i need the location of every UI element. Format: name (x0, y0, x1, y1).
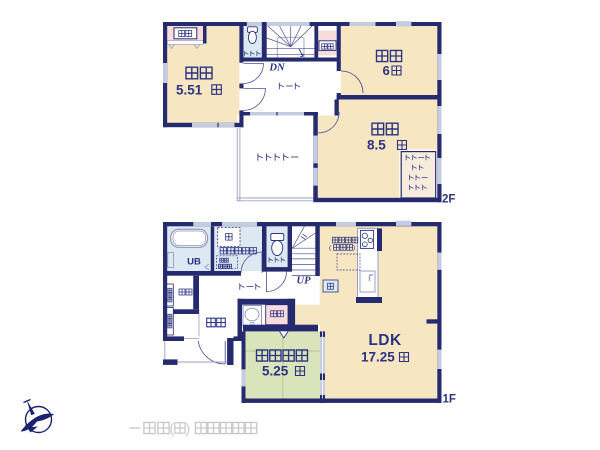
svg-text:): ) (186, 420, 191, 436)
svg-text:6: 6 (383, 63, 390, 78)
svg-text:UP: UP (297, 276, 312, 287)
svg-text:5.51: 5.51 (176, 83, 203, 98)
svg-text:1F: 1F (443, 394, 456, 406)
svg-text:UB: UB (187, 257, 201, 268)
svg-text:(: ( (170, 420, 175, 436)
svg-text:8.5: 8.5 (367, 138, 386, 153)
svg-text:17.25: 17.25 (361, 350, 395, 365)
svg-text:2F: 2F (442, 194, 455, 206)
svg-text:): ) (353, 245, 355, 252)
svg-text:5.25: 5.25 (262, 364, 289, 379)
svg-text:DN: DN (268, 63, 285, 74)
svg-text:LDK: LDK (368, 332, 402, 349)
